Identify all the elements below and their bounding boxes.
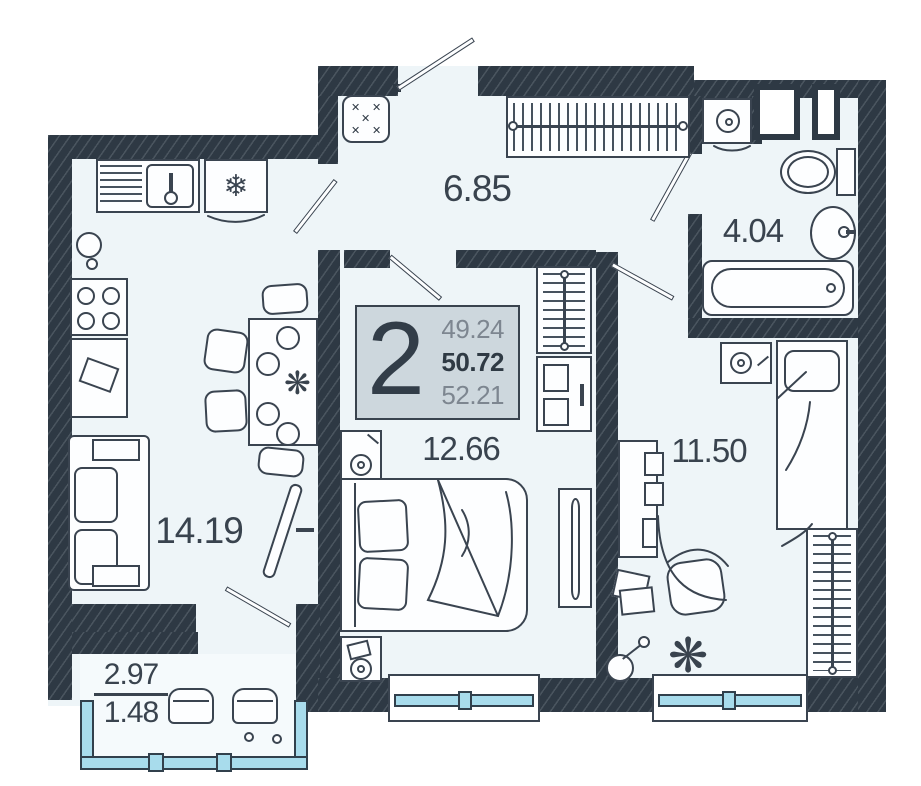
- drawer: [543, 364, 569, 392]
- burner: [102, 287, 120, 305]
- dining-table: ❋: [248, 318, 318, 446]
- vent-shaft-1: [754, 84, 800, 140]
- wall-right-outer: [858, 80, 886, 712]
- burner: [77, 312, 95, 330]
- lamp-center: [357, 461, 365, 469]
- pillow: [784, 350, 840, 392]
- sofa-cushion: [74, 467, 118, 523]
- bedside-cabinet: [720, 342, 772, 384]
- wardrobe-rail: [831, 536, 834, 670]
- kitchen-counter: [96, 159, 200, 213]
- balcony-glazing-bottom: [80, 756, 308, 770]
- double-bed: [340, 478, 528, 632]
- toilet-tank: [836, 148, 856, 196]
- stool-line: [237, 700, 273, 702]
- outside-area: [886, 0, 921, 786]
- headboard-line: [354, 483, 356, 627]
- balcony-stool: [232, 688, 278, 724]
- stove: [70, 278, 128, 336]
- dining-chair: [202, 327, 249, 374]
- tray: [79, 357, 120, 393]
- plate: [256, 402, 280, 426]
- drawer: [543, 398, 569, 426]
- plate: [256, 352, 280, 376]
- bathroom-area-label: 4.04: [695, 212, 811, 250]
- window-bedroom2-mullion: [722, 691, 736, 710]
- door-handle-dot: [244, 732, 254, 742]
- desk-shelf: [644, 482, 664, 506]
- desk-tablet: [642, 518, 658, 548]
- balcony-glazing-right: [294, 700, 308, 762]
- wall-living-bedroom1: [318, 250, 340, 678]
- outside-area: [0, 66, 318, 135]
- fridge: ❄: [204, 159, 268, 213]
- bedroom1-wardrobe: [536, 266, 592, 354]
- stool-line: [173, 700, 209, 702]
- single-bed: [776, 340, 848, 530]
- rail-end: [560, 342, 569, 351]
- wall-left-outer: [48, 135, 72, 700]
- plant-icon: ❋: [668, 628, 708, 684]
- lamp-center: [737, 359, 745, 367]
- kettle-lid-icon: [86, 258, 98, 270]
- stitch-icon: ✕: [361, 112, 370, 125]
- wall-entry-left: [318, 66, 398, 96]
- area-with-balcony: 52.21: [441, 379, 504, 412]
- rail-end: [828, 532, 837, 541]
- balcony-area-label: 2.97 1.48: [94, 658, 168, 730]
- wall-bedroom1-top-left: [344, 250, 390, 268]
- sink-tap-spout: [846, 230, 856, 234]
- nightstand: [340, 430, 382, 480]
- toilet-bowl-inner: [787, 156, 829, 188]
- wall-bathroom-bottom: [688, 318, 858, 338]
- lamp-center: [357, 665, 365, 673]
- floor-lamp-base: [606, 654, 634, 682]
- balcony-glazing-left: [80, 700, 94, 762]
- dresser-handle: [580, 384, 584, 406]
- rooms-count: 2: [367, 307, 425, 411]
- door-handle-dot: [272, 734, 282, 744]
- dish-drainer: [100, 165, 142, 207]
- hallway-area-label: 6.85: [407, 168, 547, 210]
- tv-screen: [571, 498, 580, 600]
- desk-chair: [665, 556, 728, 617]
- stitch-icon: ✕: [372, 124, 381, 137]
- pillow: [357, 499, 410, 554]
- outside-area: [0, 135, 48, 786]
- kitchen-cabinet: [70, 338, 128, 418]
- balcony-area-full: 2.97: [94, 658, 168, 696]
- wall-kitchen-top: [48, 135, 338, 159]
- stitch-icon: ✕: [351, 124, 360, 137]
- stitch-icon: ✕: [372, 101, 381, 114]
- area-total: 50.72: [441, 346, 504, 379]
- balcony-area-counted: 1.48: [94, 696, 168, 730]
- bedroom1-dresser: [536, 356, 592, 432]
- balcony-glazing-mullion: [216, 753, 232, 772]
- sofa-armrest: [92, 439, 140, 461]
- burner: [77, 287, 95, 305]
- dining-chair: [261, 282, 309, 315]
- bathtub-drain: [826, 283, 836, 293]
- wall-living-bottom-hatch: [72, 632, 198, 654]
- wardrobe-rail: [563, 273, 566, 347]
- rail-end: [560, 270, 569, 279]
- wall-balcony-right: [296, 604, 320, 712]
- outside-area: [0, 0, 921, 66]
- decor-line: [367, 434, 379, 445]
- outside-area: [308, 712, 921, 786]
- area-living: 49.24: [441, 313, 504, 346]
- sofa-armrest: [92, 565, 140, 587]
- wall-entry-right: [478, 66, 694, 96]
- bathtub-inner: [711, 268, 845, 308]
- rail-end: [678, 121, 688, 131]
- fridge-snowflake-icon: ❄: [223, 170, 248, 203]
- living-area-label: 14.19: [129, 510, 269, 552]
- nightstand: [340, 636, 382, 682]
- plate: [276, 422, 300, 446]
- bedroom1-tv-panel: [558, 488, 592, 608]
- vent-shaft-2: [812, 84, 840, 140]
- dining-chair: [257, 446, 306, 479]
- wall-bottom-3: [808, 678, 858, 712]
- wall-living-bottom: [72, 604, 196, 632]
- floor-lamp-head: [638, 636, 650, 648]
- faucet-icon: [164, 191, 178, 205]
- wall-bottom-2: [540, 678, 652, 712]
- washing-machine: [702, 98, 752, 144]
- bedroom2-area-label: 11.50: [639, 432, 779, 470]
- stitch-icon: ✕: [351, 101, 360, 114]
- window-bedroom1-mullion: [458, 691, 472, 710]
- table-plant-icon: ❋: [284, 364, 311, 402]
- plate: [276, 326, 300, 350]
- burner: [102, 312, 120, 330]
- living-tv-mount: [296, 528, 314, 532]
- ottoman: ✕ ✕ ✕ ✕ ✕: [342, 95, 390, 143]
- balcony-stool: [168, 688, 214, 724]
- wall-entry-pillar: [318, 96, 338, 164]
- bathtub: [702, 260, 854, 316]
- rail-end: [508, 121, 518, 131]
- rail-end: [828, 666, 837, 675]
- bedroom2-wardrobe: [806, 528, 858, 678]
- wall-bottom-1: [318, 678, 388, 712]
- dining-chair: [204, 389, 248, 433]
- bedroom1-area-label: 12.66: [391, 430, 531, 468]
- outside-area: [0, 706, 80, 786]
- washer-drum-center: [725, 118, 733, 126]
- coat-rack: [506, 96, 690, 158]
- unit-info-box: 2 49.24 50.72 52.21: [355, 305, 520, 420]
- faucet-neck: [169, 173, 173, 193]
- pillow: [357, 557, 410, 612]
- papers: [619, 586, 656, 615]
- wall-bathroom-left-upper: [688, 96, 702, 154]
- coat-rail: [512, 125, 684, 128]
- floor-plan: ❄ ❋ ✕ ✕ ✕ ✕ ✕ 6.8: [0, 0, 921, 786]
- wall-center-vertical: [596, 252, 618, 678]
- kettle-icon: [76, 232, 102, 258]
- decor-line: [757, 356, 769, 367]
- balcony-glazing-mullion: [148, 753, 164, 772]
